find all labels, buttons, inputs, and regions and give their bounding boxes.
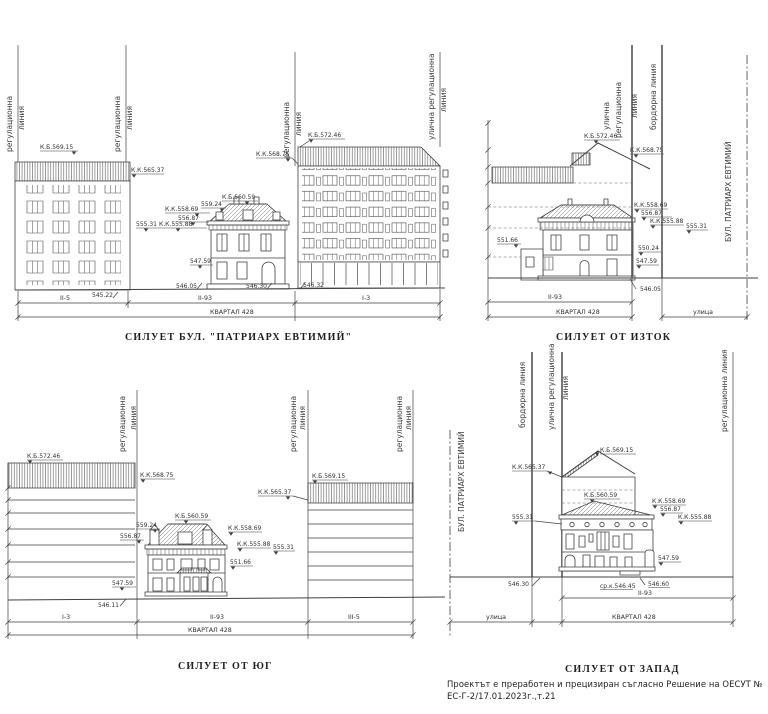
elevation-label: К.Б.572.46 — [584, 133, 617, 140]
plot-label: II-93 — [210, 614, 224, 621]
elevation-label: К.К.568.75 — [140, 472, 174, 479]
elevation-label: 559.24 — [201, 201, 222, 208]
revision-note-line2: ЕС-Г-2/17.01.2023г.,т.21 — [447, 691, 556, 701]
elevation-label: К.Б.569.15 — [40, 144, 73, 151]
regulation-line-label: линия — [17, 106, 26, 130]
elevation-label: 555.31 — [512, 514, 533, 521]
elevation-label: К.Б.569.15 — [312, 473, 345, 480]
elevation-label: К.К.568.75 — [630, 147, 664, 154]
revision-note: Проектът е преработен и прецизиран съгла… — [447, 679, 763, 701]
silhouette-drawing: регулационна линия регулационна линия ре… — [0, 0, 768, 714]
street-regulation-line-label: регулационна — [614, 82, 623, 138]
elevation-label: К.Б.569.15 — [600, 447, 633, 454]
elevation-label: 547.59 — [190, 258, 211, 265]
left-apartment-building — [15, 162, 130, 290]
adjacent-building-roof-band — [492, 167, 573, 183]
elevation-label: К.Б.560.59 — [584, 492, 617, 499]
elevation-label: К.К.565.37 — [131, 167, 165, 174]
panel-title: СИЛУЕТ БУЛ. "ПАТРИАРХ ЕВТИМИЙ" — [125, 331, 352, 343]
elevation-label: К.К.558.69 — [165, 206, 199, 213]
right-apartment-building — [298, 147, 448, 288]
elevation-label: К.К.565.37 — [512, 464, 546, 471]
architectural-silhouette-sheet: регулационна линия регулационна линия ре… — [0, 0, 768, 714]
elevation-label: К.К.568.75 — [256, 151, 290, 158]
elevation-label: 559.24 — [136, 522, 157, 529]
elevation-label: 555.31 — [686, 223, 707, 230]
elevation-label: 550.24 — [638, 245, 659, 252]
story-level-line — [485, 120, 490, 278]
elevation-label: К.К.558.69 — [634, 202, 668, 209]
ground-elevation-label: 546.32 — [303, 282, 324, 289]
street-regulation-line-label: линия — [439, 88, 448, 112]
elevation-label: 555.31 — [273, 544, 294, 551]
elevation-label: К.К.565.37 — [258, 489, 292, 496]
elevation-label: К.К.558.69 — [228, 525, 262, 532]
panel-title: СИЛУЕТ ОТ ЮГ — [178, 661, 273, 672]
panel-silhouette-south: К.Б.572.46 К.К.568.75 регулационна линия… — [5, 390, 466, 672]
regulation-line-label: линия — [404, 406, 413, 430]
panel-title: СИЛУЕТ ОТ ИЗТОК — [556, 332, 671, 343]
regulation-line-label: регулационна — [395, 396, 404, 452]
street-regulation-line-label: улична регулационна — [427, 53, 436, 140]
elevation-label: 547.59 — [112, 580, 133, 587]
plot-label: I-3 — [62, 614, 70, 621]
ground-elevation-label: 545.22 — [92, 292, 113, 299]
panel-silhouette-blvd: регулационна линия регулационна линия ре… — [5, 45, 448, 343]
elevation-label: К.К.555.88 — [650, 218, 684, 225]
street-label: улица — [693, 309, 713, 316]
ground-elevation-label: 546.11 — [98, 602, 119, 609]
regulation-line-label: регулационна — [5, 96, 14, 152]
street-regulation-line-label: линия — [630, 94, 639, 118]
ground-elevation-label: ср.к.546.45 — [600, 583, 636, 590]
boulevard-label: БУЛ. ПАТРИАРХ ЕВТИМИЙ — [457, 431, 466, 532]
ground-and-dimensions: 545.22 II-5 II-93 I-3 КВАРТАЛ 428 — [15, 288, 445, 321]
elevation-label: К.Б.560.59 — [175, 513, 208, 520]
regulation-line-label: регулационна — [113, 96, 122, 152]
plot-label: II-93 — [198, 295, 212, 302]
ground-elevation-label: 546.60 — [648, 581, 669, 588]
street-lines: улична регулационна линия бордюрна линия… — [602, 45, 747, 322]
ground-and-dimensions: 546.11 I-3 II-93 III-5 КВАРТАЛ 428 — [5, 597, 445, 639]
house-west-facade — [559, 451, 655, 575]
regulation-line-label: регулационна — [289, 396, 298, 452]
middle-house-south — [145, 524, 227, 596]
regulation-line-label: линия — [125, 106, 134, 130]
revision-note-line1: Проектът е преработен и прецизиран съгла… — [447, 679, 763, 689]
elevation-label: 556.87 — [641, 210, 662, 217]
elevation-label: 556.87 — [660, 506, 681, 513]
ground-elevation-label: 546.05 — [640, 286, 661, 293]
panel-silhouette-west: бордюрна линия улична регулационна линия… — [447, 343, 763, 701]
regulation-line-label: линия — [294, 112, 303, 136]
block-label: КВАРТАЛ 428 — [612, 614, 656, 621]
elevation-label: К.К.555.88 — [678, 514, 712, 521]
curb-line-label: бордюрна линия — [649, 64, 658, 130]
block-label: КВАРТАЛ 428 — [210, 309, 254, 316]
panel-title: СИЛУЕТ ОТ ЗАПАД — [565, 664, 680, 675]
block-label: КВАРТАЛ 428 — [188, 627, 232, 634]
plot-label: I-3 — [362, 295, 370, 302]
elevation-label: К.К.558.69 — [652, 498, 686, 505]
regulation-line-label: линия — [298, 406, 307, 430]
elevation-label: К.Б.572.46 — [308, 132, 341, 139]
elevation-label: К.К.555.88 — [159, 221, 193, 228]
ground-and-dimensions: II-93 КВАРТАЛ 428 улица — [485, 278, 758, 321]
elevation-label: 547.59 — [636, 258, 657, 265]
street-regulation-line-label: линия — [561, 376, 570, 400]
regulation-line-label: регулационна линия — [720, 350, 729, 432]
elevation-label: К.К.555.88 — [237, 541, 271, 548]
street-regulation-line-label: улична — [602, 102, 611, 130]
plot-label: III-5 — [348, 614, 360, 621]
middle-house — [207, 197, 289, 289]
plot-label: II-93 — [548, 294, 562, 301]
elevation-label: 551.66 — [497, 237, 518, 244]
curb-line-label: бордюрна линия — [518, 362, 527, 428]
boulevard-line: БУЛ. ПАТРИАРХ ЕВТИМИЙ — [450, 430, 466, 636]
panel-silhouette-east: К.Б.572.46 К.К.568.75 — [485, 45, 758, 343]
plot-label: II-5 — [60, 295, 70, 302]
regulation-line-label: регулационна — [282, 102, 291, 158]
block-label: КВАРТАЛ 428 — [556, 309, 600, 316]
ground-elevation-label: 546.30 — [508, 581, 529, 588]
ground-and-dimensions: 546.30 ср.к.546.45 546.60 II-93 улица КВ… — [447, 577, 735, 627]
elevation-label: 556.87 — [120, 533, 141, 540]
regulation-line-label: регулационна — [118, 396, 127, 452]
elevation-label: 551.66 — [230, 559, 251, 566]
elevation-label: 555.31 — [136, 221, 157, 228]
street-regulation-line-label: улична регулационна — [547, 343, 556, 430]
elevation-label: К.Б.560.59 — [222, 194, 255, 201]
elevation-label: К.Б.572.46 — [27, 453, 60, 460]
boulevard-label: БУЛ. ПАТРИАРХ ЕВТИМИЙ — [724, 141, 733, 242]
street-label: улица — [486, 614, 506, 621]
house-east-facade — [521, 199, 635, 280]
elevation-label: 547.59 — [658, 555, 679, 562]
regulation-line-label: линия — [129, 406, 138, 430]
plot-label: II-93 — [638, 590, 652, 597]
right-building-section: К.Б.569.15 К.К.565.37 — [258, 473, 413, 600]
